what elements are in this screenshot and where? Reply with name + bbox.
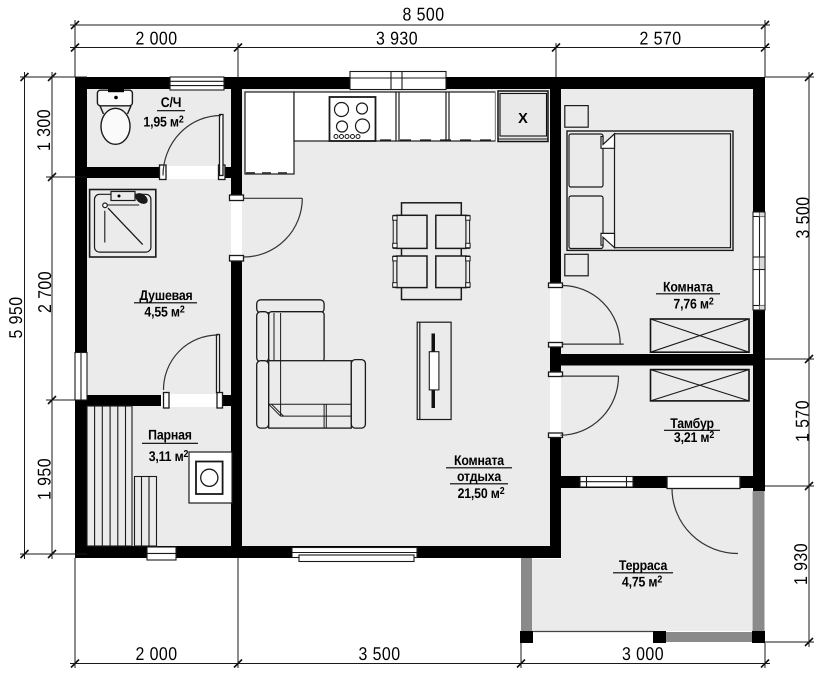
svg-text:5 950: 5 950: [5, 297, 26, 339]
svg-text:2 000: 2 000: [136, 643, 178, 664]
svg-text:2 000: 2 000: [136, 28, 178, 49]
svg-text:3,21 м2: 3,21 м2: [674, 429, 715, 445]
svg-text:С/Ч: С/Ч: [161, 94, 181, 110]
svg-text:21,50 м2: 21,50 м2: [458, 485, 505, 501]
svg-text:1 570: 1 570: [792, 400, 813, 442]
svg-text:3,11 м2: 3,11 м2: [149, 448, 189, 464]
svg-text:отдыха: отдыха: [457, 468, 501, 484]
svg-text:Комната: Комната: [663, 279, 713, 295]
svg-text:3 000: 3 000: [622, 643, 664, 664]
svg-text:1 950: 1 950: [34, 458, 55, 500]
svg-text:2 700: 2 700: [34, 271, 55, 313]
svg-text:1 930: 1 930: [790, 543, 811, 585]
svg-text:X: X: [518, 111, 528, 127]
svg-text:3 500: 3 500: [359, 643, 401, 664]
svg-text:3 930: 3 930: [376, 28, 418, 49]
svg-text:7,76 м2: 7,76 м2: [673, 296, 714, 312]
svg-text:3 500: 3 500: [792, 197, 813, 239]
svg-text:8 500: 8 500: [403, 4, 445, 25]
svg-text:Терраса: Терраса: [619, 557, 668, 573]
svg-text:Парная: Парная: [148, 427, 192, 443]
svg-text:1 300: 1 300: [33, 109, 54, 151]
svg-text:1,95 м2: 1,95 м2: [143, 114, 184, 130]
svg-text:Душевая: Душевая: [139, 287, 192, 303]
svg-text:4,55 м2: 4,55 м2: [144, 304, 185, 320]
svg-text:4,75 м2: 4,75 м2: [622, 574, 663, 590]
svg-text:Комната: Комната: [454, 452, 504, 468]
svg-text:2 570: 2 570: [640, 28, 682, 49]
